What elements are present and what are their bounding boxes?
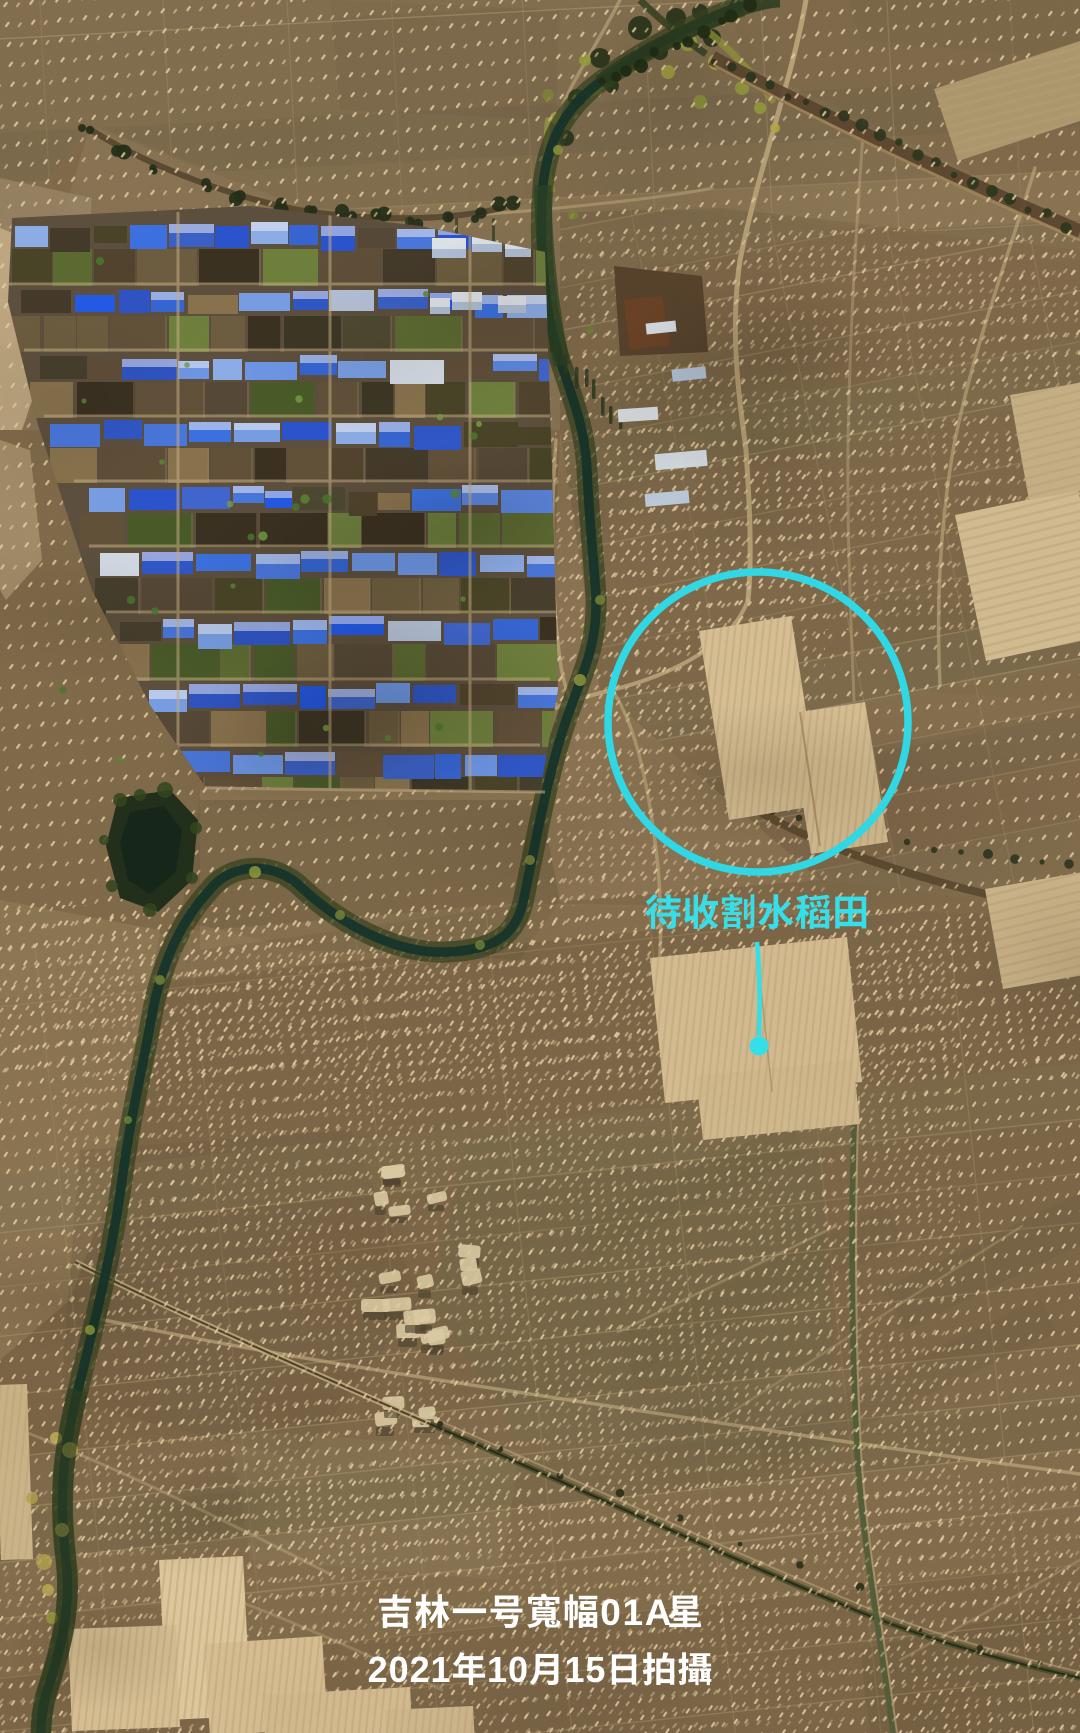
svg-text:0: 0 [508, 1649, 528, 1690]
svg-text:5: 5 [585, 1649, 605, 1690]
svg-text:1: 1 [565, 1649, 585, 1690]
svg-text:0: 0 [389, 1649, 409, 1690]
svg-text:0: 0 [600, 1592, 621, 1633]
svg-text:2: 2 [368, 1649, 388, 1690]
svg-text:2: 2 [410, 1649, 430, 1690]
svg-text:1: 1 [431, 1649, 451, 1690]
svg-text:A: A [645, 1592, 672, 1633]
svg-text:1: 1 [487, 1649, 507, 1690]
svg-text:1: 1 [623, 1592, 644, 1633]
